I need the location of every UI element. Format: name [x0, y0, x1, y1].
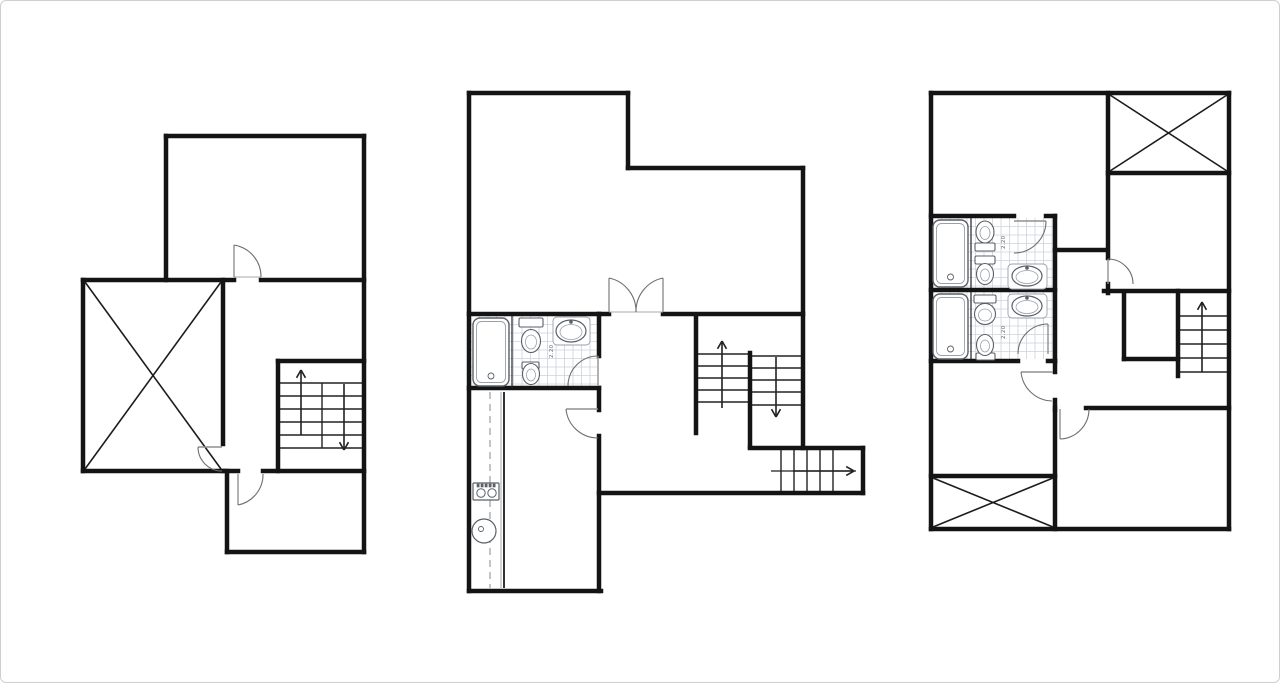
- door-arc: [198, 447, 222, 471]
- stove-knob: [485, 484, 487, 487]
- floor-plan-page: 2.202.202.20: [0, 0, 1280, 683]
- toilet-tank: [975, 243, 995, 251]
- door-arc: [1021, 372, 1052, 401]
- bidet-tank: [975, 256, 995, 264]
- dimension-label: 2.20: [1001, 325, 1007, 339]
- door-arc: [568, 356, 598, 386]
- stove-knob: [489, 484, 491, 487]
- door-arc: [234, 245, 261, 277]
- floor-plan-middle: 2.20: [469, 93, 863, 591]
- bathtub: [473, 318, 509, 386]
- kitchen-sink: [472, 519, 496, 543]
- door-arc: [238, 474, 263, 505]
- door-arc: [1060, 409, 1089, 439]
- door-arc: [1014, 221, 1046, 253]
- sink-faucet: [1026, 297, 1029, 300]
- door-arc: [566, 409, 598, 438]
- toilet-tank: [519, 318, 543, 327]
- sink-faucet: [1026, 267, 1029, 270]
- bathtub: [933, 294, 968, 359]
- stove-knob: [481, 484, 483, 487]
- toilet-tank: [974, 295, 996, 303]
- stove-knob: [477, 484, 479, 487]
- floor-plan-left: [83, 136, 364, 552]
- bathtub: [933, 220, 968, 287]
- floor-plan-right: 2.202.20: [931, 93, 1229, 529]
- double-door-arc: [636, 278, 663, 312]
- floor-plans-canvas: 2.202.202.20: [1, 1, 1280, 683]
- dimension-label: 2.20: [549, 344, 555, 358]
- dimension-label: 2.20: [1001, 235, 1007, 249]
- stove-knob: [493, 484, 495, 487]
- double-door-arc: [609, 278, 636, 312]
- door-arc: [1108, 259, 1133, 284]
- sink-faucet: [570, 321, 573, 324]
